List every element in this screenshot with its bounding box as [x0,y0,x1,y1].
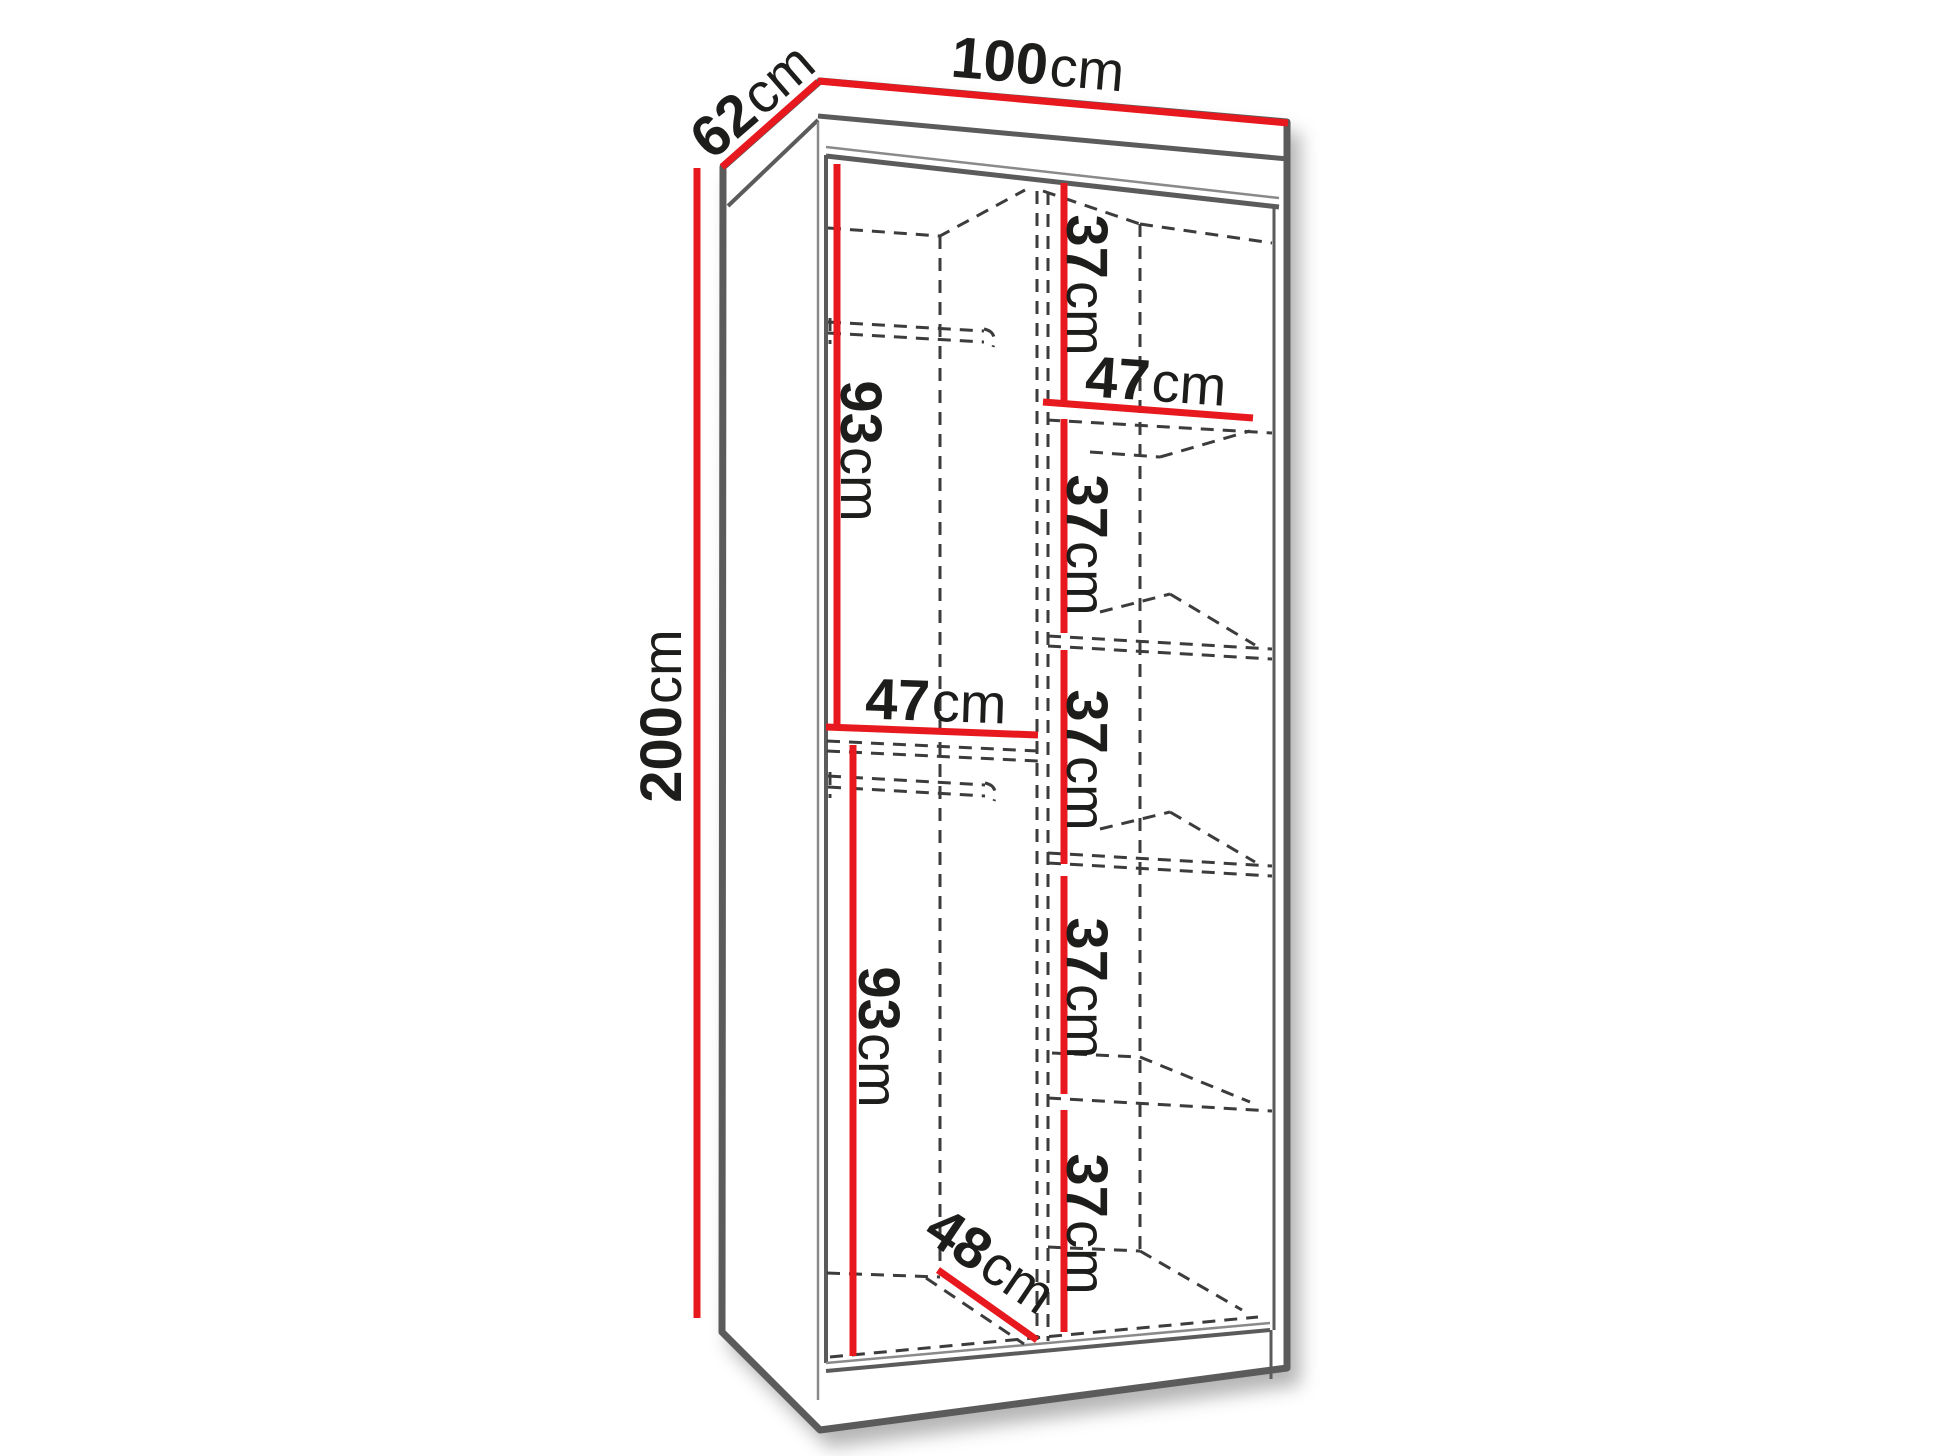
left-width-label: 47cm [864,666,1007,736]
hanging-top-label: 93cm [829,380,894,521]
wardrobe-outline [722,81,1287,1430]
shelf-gap-label: 37cm [1055,689,1120,830]
hanging-bottom-label: 93cm [847,966,912,1107]
wardrobe-body [722,81,1288,1430]
shelf-gap-label: 37cm [1055,917,1120,1058]
shelf-gap-label: 37cm [1055,474,1120,615]
diagram-canvas: 100cm 62cm 200cm 93cm 93cm 47cm 47cm 37c… [0,0,1940,1456]
height-label: 200cm [629,629,694,802]
wardrobe-dimension-diagram: 100cm 62cm 200cm 93cm 93cm 47cm 47cm 37c… [0,0,1940,1456]
shelf-gap-label: 37cm [1055,214,1120,355]
